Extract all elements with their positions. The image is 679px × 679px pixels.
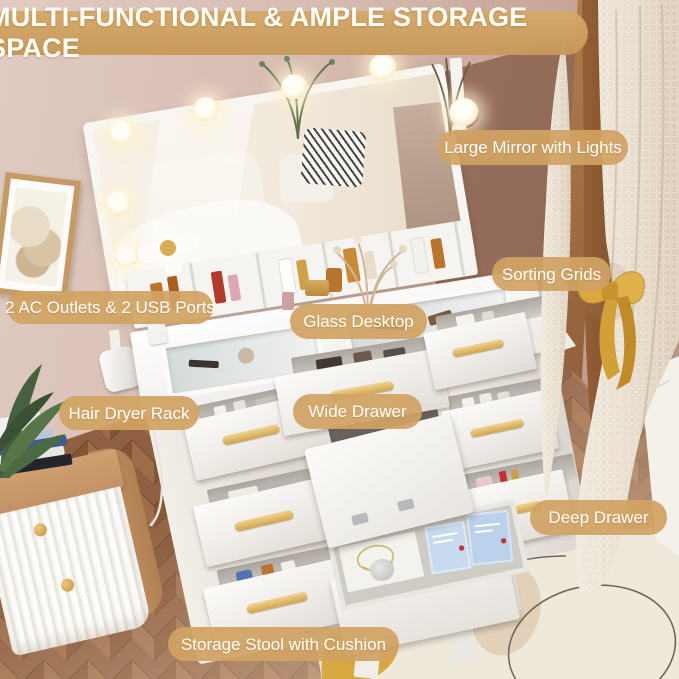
callout-storage-stool: Storage Stool with Cushion: [168, 627, 399, 661]
perfume-bottle: [282, 292, 294, 310]
callout-ac-usb: 2 AC Outlets & 2 USB Ports: [7, 291, 213, 324]
light-bulb: [281, 74, 308, 101]
callout-glass-desktop: Glass Desktop: [290, 304, 427, 339]
light-bulb: [449, 98, 479, 128]
callout-sorting-grids: Sorting Grids: [492, 257, 611, 291]
storage-box-blue: [424, 521, 471, 575]
callout-deep-drawer: Deep Drawer: [530, 500, 667, 535]
gold-jar: [305, 280, 329, 296]
banner-title: MULTI-FUNCTIONAL & AMPLE STORAGE SPACE: [0, 11, 588, 55]
callout-hair-dryer-rack: Hair Dryer Rack: [59, 396, 199, 430]
product-photo: MULTI-FUNCTIONAL & AMPLE STORAGE SPACE L…: [0, 0, 679, 679]
daisy-decor: [138, 222, 198, 274]
light-bulb: [109, 120, 135, 146]
callout-wide-drawer: Wide Drawer: [293, 394, 422, 429]
curtains: [520, 0, 679, 679]
light-bulb: [106, 191, 132, 217]
light-bulb: [115, 245, 139, 269]
storage-box-blue: [466, 510, 513, 566]
callout-large-mirror: Large Mirror with Lights: [438, 130, 628, 165]
picture-art: [4, 187, 67, 287]
light-bulb: [193, 97, 219, 123]
